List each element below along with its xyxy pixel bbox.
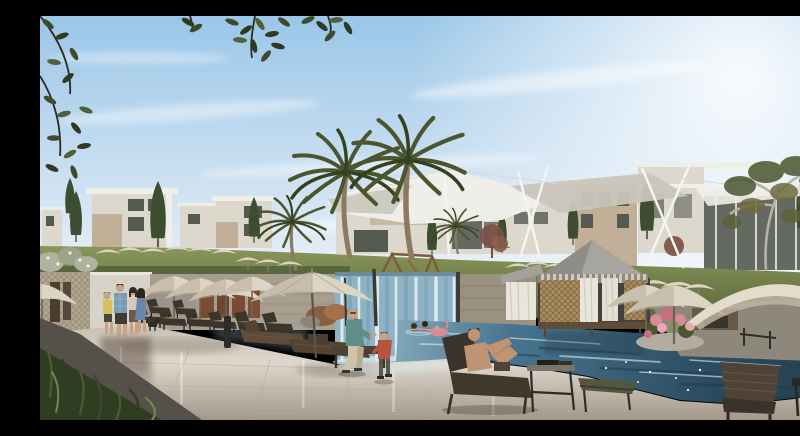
resort-pool-rendering [40, 16, 800, 420]
cabana-reflection [545, 332, 645, 354]
scene-canvas [40, 16, 800, 420]
right-bench [720, 362, 780, 420]
bollard [224, 316, 231, 348]
